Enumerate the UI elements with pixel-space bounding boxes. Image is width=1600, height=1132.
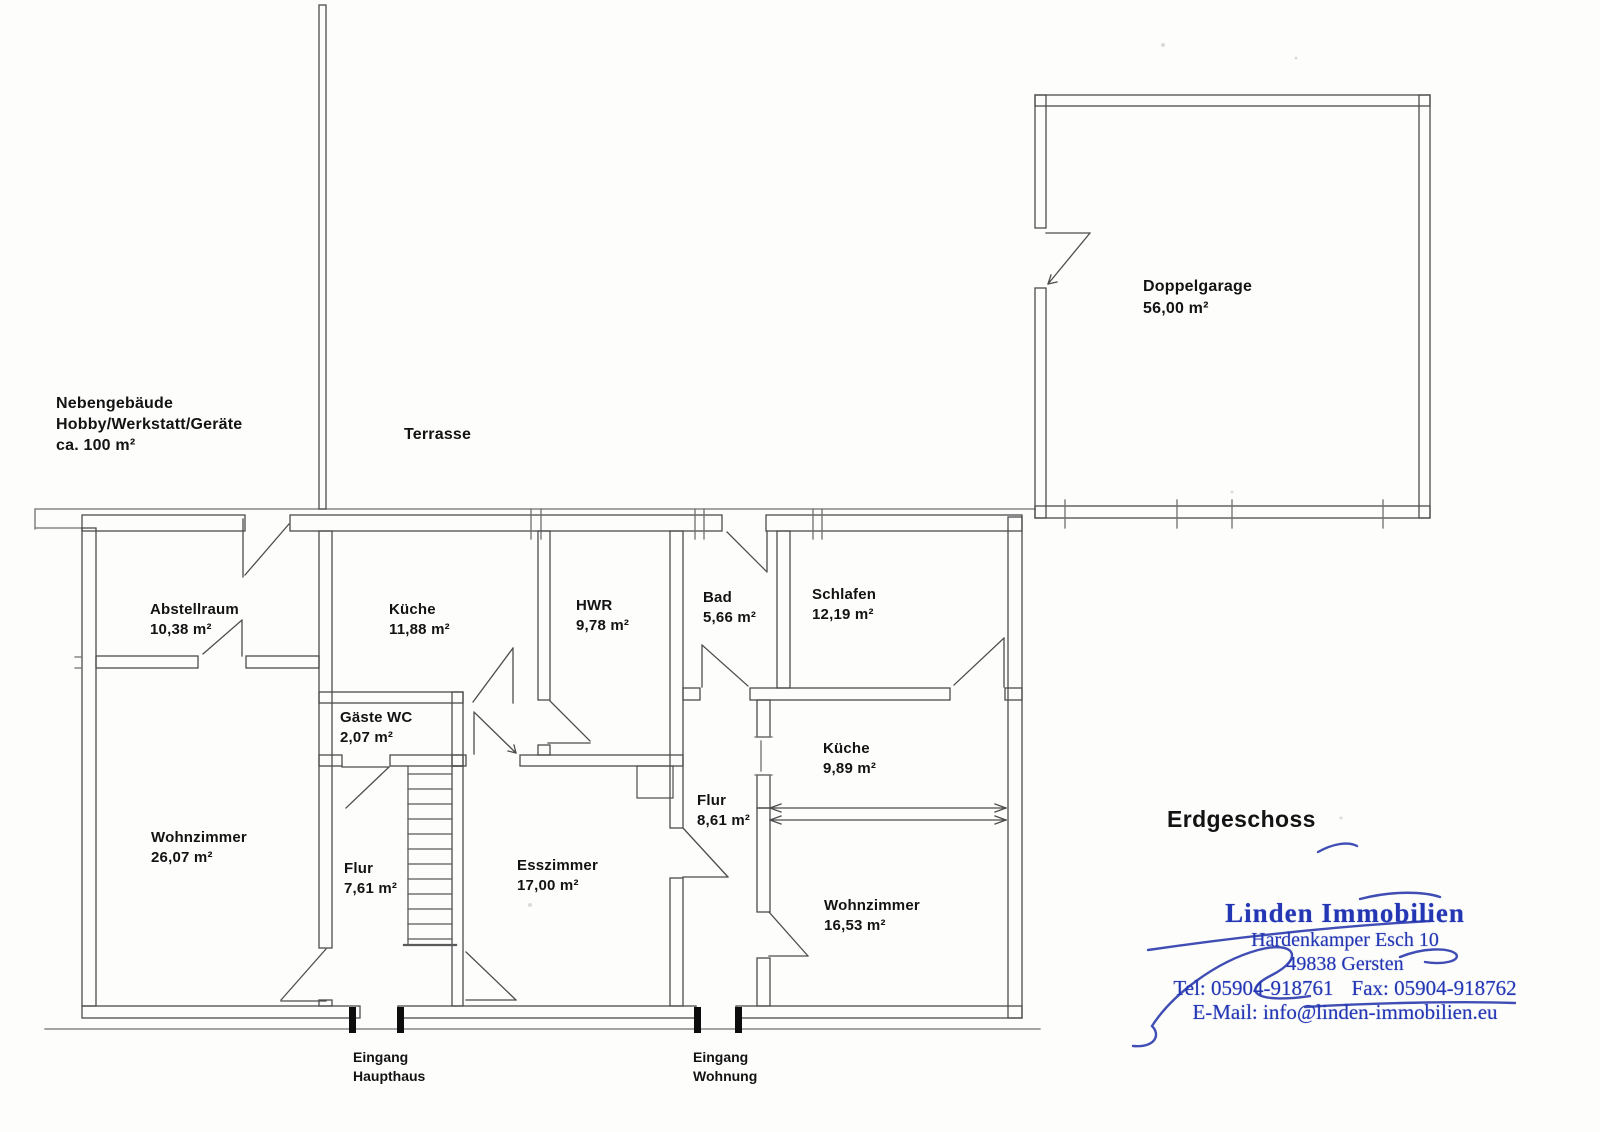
- room-label-abstellraum: Abstellraum 10,38 m²: [150, 600, 239, 640]
- room-area: 10,38 m²: [150, 620, 239, 640]
- room-label-esszimmer: Esszimmer 17,00 m²: [517, 856, 598, 896]
- hall-door-swings: [473, 648, 516, 754]
- abstellraum-walls: [96, 656, 319, 668]
- room-label-flur-haupthaus: Flur 7,61 m²: [344, 859, 397, 899]
- room-name: Esszimmer: [517, 856, 598, 876]
- room-name: Wohnzimmer: [151, 828, 247, 848]
- floor-title: Erdgeschoss: [1167, 806, 1316, 833]
- kueche-wohnzimmer-opening-arrows: [770, 804, 1006, 824]
- room-label-wohnzimmer-wohnung: Wohnzimmer 16,53 m²: [824, 896, 920, 936]
- floorplan-page: Nebengebäude Hobby/Werkstatt/Geräte ca. …: [0, 0, 1600, 1132]
- entrance-line-2: Wohnung: [693, 1067, 757, 1086]
- room-area: 26,07 m²: [151, 848, 247, 868]
- entrance-label-wohnung: Eingang Wohnung: [693, 1048, 757, 1086]
- room-label-wohnzimmer-haupthaus: Wohnzimmer 26,07 m²: [151, 828, 247, 868]
- outbuilding-line-3: ca. 100 m²: [56, 435, 242, 456]
- room-area: 7,61 m²: [344, 879, 397, 899]
- room-area: 2,07 m²: [340, 728, 412, 748]
- room-area: 16,53 m²: [824, 916, 920, 936]
- room-area: 8,61 m²: [697, 811, 750, 831]
- central-spine-wall: [319, 531, 332, 1006]
- room-label-hwr: HWR 9,78 m²: [576, 596, 629, 636]
- room-name: Gäste WC: [340, 708, 412, 728]
- room-label-bad: Bad 5,66 m²: [703, 588, 756, 628]
- room-label-gaeste-wc: Gäste WC 2,07 m²: [340, 708, 412, 748]
- flur-kueche-wall: [755, 700, 772, 808]
- garage-door-swing: [1046, 233, 1090, 284]
- outbuilding-line-1: Nebengebäude: [56, 393, 242, 414]
- room-name: HWR: [576, 596, 629, 616]
- wohnzimmer-main-door-swing: [281, 949, 326, 1001]
- wohnzimmer2-wall: [757, 808, 770, 1006]
- room-area: 11,88 m²: [389, 620, 450, 640]
- stamp-address: Hardenkamper Esch 10: [1155, 928, 1535, 952]
- garage-name: Doppelgarage: [1143, 276, 1252, 298]
- schlafen-door-swing: [954, 638, 1004, 687]
- esszimmer-top-wall: [452, 755, 683, 766]
- outbuilding-label: Nebengebäude Hobby/Werkstatt/Geräte ca. …: [56, 393, 242, 456]
- stamp-company: Linden Immobilien: [1155, 898, 1535, 928]
- room-label-kueche-haupthaus: Küche 11,88 m²: [389, 600, 450, 640]
- garage-label: Doppelgarage 56,00 m²: [1143, 276, 1252, 320]
- gaeste-wc-door-swing: [342, 767, 389, 808]
- room-name: Abstellraum: [150, 600, 239, 620]
- house-outer-walls: [75, 517, 1022, 1018]
- chimney-shaft: [637, 766, 673, 798]
- room-area: 9,78 m²: [576, 616, 629, 636]
- stamp-telfax: Tel: 05904-918761Fax: 05904-918762: [1155, 976, 1535, 1000]
- room-name: Küche: [823, 739, 876, 759]
- outbuilding-line-2: Hobby/Werkstatt/Geräte: [56, 414, 242, 435]
- terrace-divider-wall: [319, 5, 326, 509]
- stamp-fax: Fax: 05904-918762: [1352, 976, 1517, 1000]
- room-label-schlafen: Schlafen 12,19 m²: [812, 585, 876, 625]
- room-name: Schlafen: [812, 585, 876, 605]
- entrance-label-haupthaus: Eingang Haupthaus: [353, 1048, 425, 1086]
- entrance-line-1: Eingang: [353, 1048, 425, 1067]
- house-top-wall: [82, 509, 1022, 539]
- entrance-line-2: Haupthaus: [353, 1067, 425, 1086]
- room-area: 17,00 m²: [517, 876, 598, 896]
- entrance-line-1: Eingang: [693, 1048, 757, 1067]
- room-area: 12,19 m²: [812, 605, 876, 625]
- company-stamp: Linden Immobilien Hardenkamper Esch 10 4…: [1155, 898, 1535, 1024]
- unit-divider-wall: [670, 531, 683, 1006]
- room-name: Flur: [697, 791, 750, 811]
- scan-specks: [528, 43, 1343, 907]
- room-label-kueche-wohnung: Küche 9,89 m²: [823, 739, 876, 779]
- wohnzimmer2-door-swing: [769, 912, 808, 956]
- room-label-flur-wohnung: Flur 8,61 m²: [697, 791, 750, 831]
- stamp-city: 49838 Gersten: [1155, 952, 1535, 976]
- room-name: Wohnzimmer: [824, 896, 920, 916]
- room-area: 5,66 m²: [703, 608, 756, 628]
- stamp-email: E-Mail: info@linden-immobilien.eu: [1155, 1000, 1535, 1024]
- terrace-label: Terrasse: [404, 424, 471, 445]
- stamp-tel: Tel: 05904-918761: [1173, 976, 1333, 1000]
- room-name: Küche: [389, 600, 450, 620]
- staircase: [404, 766, 456, 945]
- hwr-door-swing: [548, 701, 590, 743]
- connecting-door-swing: [683, 828, 728, 877]
- garage-area: 56,00 m²: [1143, 298, 1252, 320]
- room-name: Flur: [344, 859, 397, 879]
- stair-wall: [452, 766, 463, 1006]
- hwr-walls: [538, 531, 550, 755]
- esszimmer-door-swing: [466, 952, 516, 1000]
- room-name: Bad: [703, 588, 756, 608]
- room-area: 9,89 m²: [823, 759, 876, 779]
